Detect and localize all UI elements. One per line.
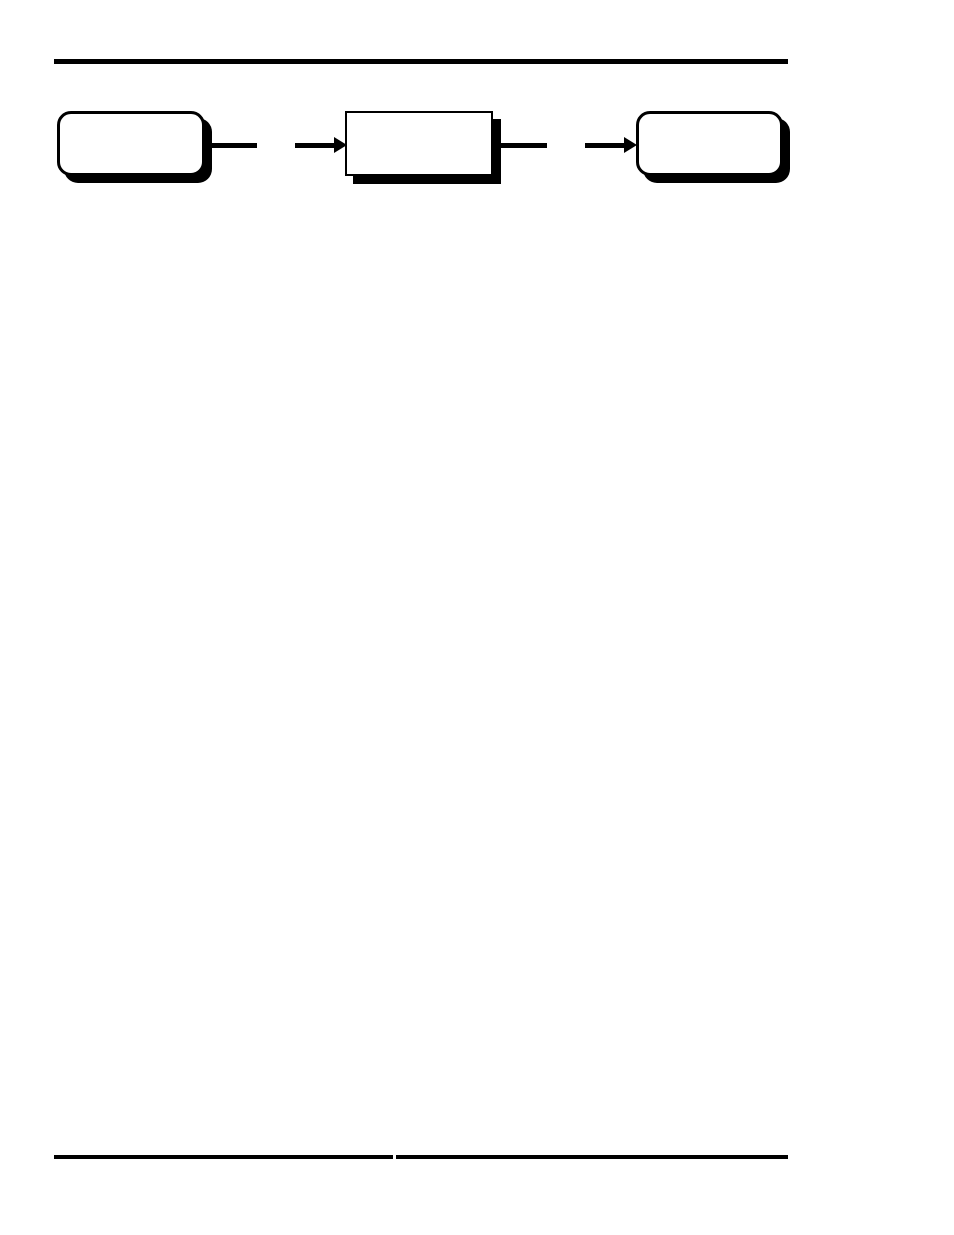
connector-2-stub-line [493, 143, 547, 148]
header-rule [54, 59, 788, 64]
connector-1-stub-line [210, 143, 257, 148]
footer-rule-right-segment [396, 1155, 788, 1159]
document-page [0, 0, 954, 1235]
flow-node-middle [345, 111, 493, 176]
connector-2-arrow-line [585, 143, 626, 148]
connector-1-arrow-line [295, 143, 336, 148]
footer-rule-left-segment [54, 1155, 393, 1159]
flow-node-end [636, 111, 783, 176]
flow-node-start [57, 111, 205, 176]
